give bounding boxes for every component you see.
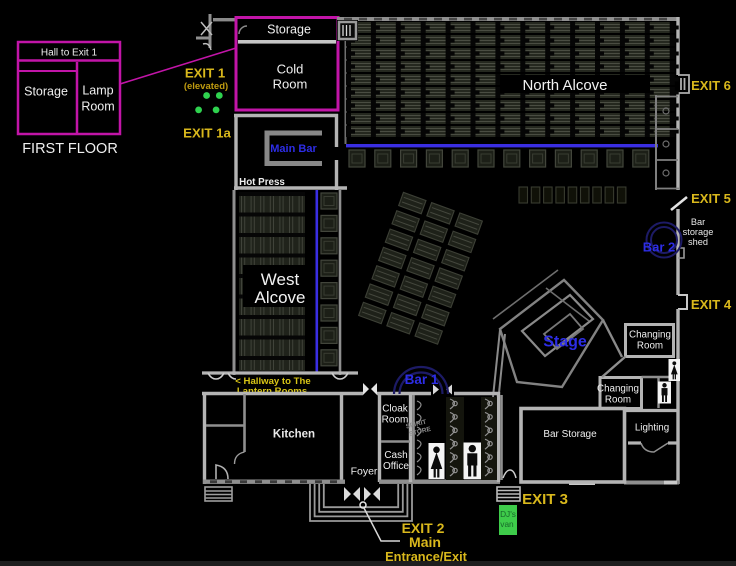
svg-text:Bar 1: Bar 1 [405,372,439,387]
svg-text:EXIT 6: EXIT 6 [691,78,731,93]
svg-text:DJ's: DJ's [500,509,516,519]
svg-text:Lamp: Lamp [82,84,113,98]
svg-text:(elevated): (elevated) [184,81,228,92]
svg-text:EXIT 5: EXIT 5 [691,191,731,206]
svg-text:Main Bar: Main Bar [270,143,317,155]
svg-text:van: van [500,519,514,529]
svg-text:Lantern Rooms: Lantern Rooms [237,386,307,397]
svg-text:EXIT 1a: EXIT 1a [183,126,231,141]
svg-text:Cold: Cold [277,62,304,77]
svg-text:Foyer: Foyer [351,466,378,478]
svg-text:Changing: Changing [629,330,671,341]
svg-text:West: West [261,270,300,289]
svg-text:Main: Main [409,534,441,550]
svg-text:Kitchen: Kitchen [273,429,315,441]
svg-text:Room: Room [637,341,663,352]
svg-text:Office: Office [383,461,409,472]
svg-text:Storage: Storage [24,85,68,99]
svg-text:EXIT 1: EXIT 1 [185,66,225,81]
svg-text:Hall to Exit 1: Hall to Exit 1 [41,48,98,59]
svg-text:Alcove: Alcove [254,288,305,307]
svg-text:Lighting: Lighting [635,423,669,434]
svg-text:Stage: Stage [543,334,587,351]
svg-text:EXIT 3: EXIT 3 [522,491,568,508]
svg-text:EXIT 4: EXIT 4 [691,297,732,312]
svg-text:Cloak: Cloak [382,404,409,415]
svg-text:Bar 2: Bar 2 [643,240,676,255]
svg-text:North Alcove: North Alcove [522,77,607,94]
svg-text:Storage: Storage [267,23,311,37]
svg-text:Cash: Cash [384,450,407,461]
svg-text:FIRST FLOOR: FIRST FLOOR [22,141,118,157]
svg-text:Entrance/Exit: Entrance/Exit [385,549,468,564]
svg-text:Room: Room [273,77,308,92]
svg-text:Hot Press: Hot Press [239,177,285,188]
svg-text:Room: Room [605,395,631,406]
svg-text:Bar Storage: Bar Storage [543,429,597,440]
svg-text:shed: shed [688,237,708,247]
svg-text:Bar: Bar [691,217,705,227]
svg-text:Changing: Changing [597,384,639,395]
svg-text:Room: Room [81,100,114,114]
svg-text:storage: storage [683,227,714,237]
